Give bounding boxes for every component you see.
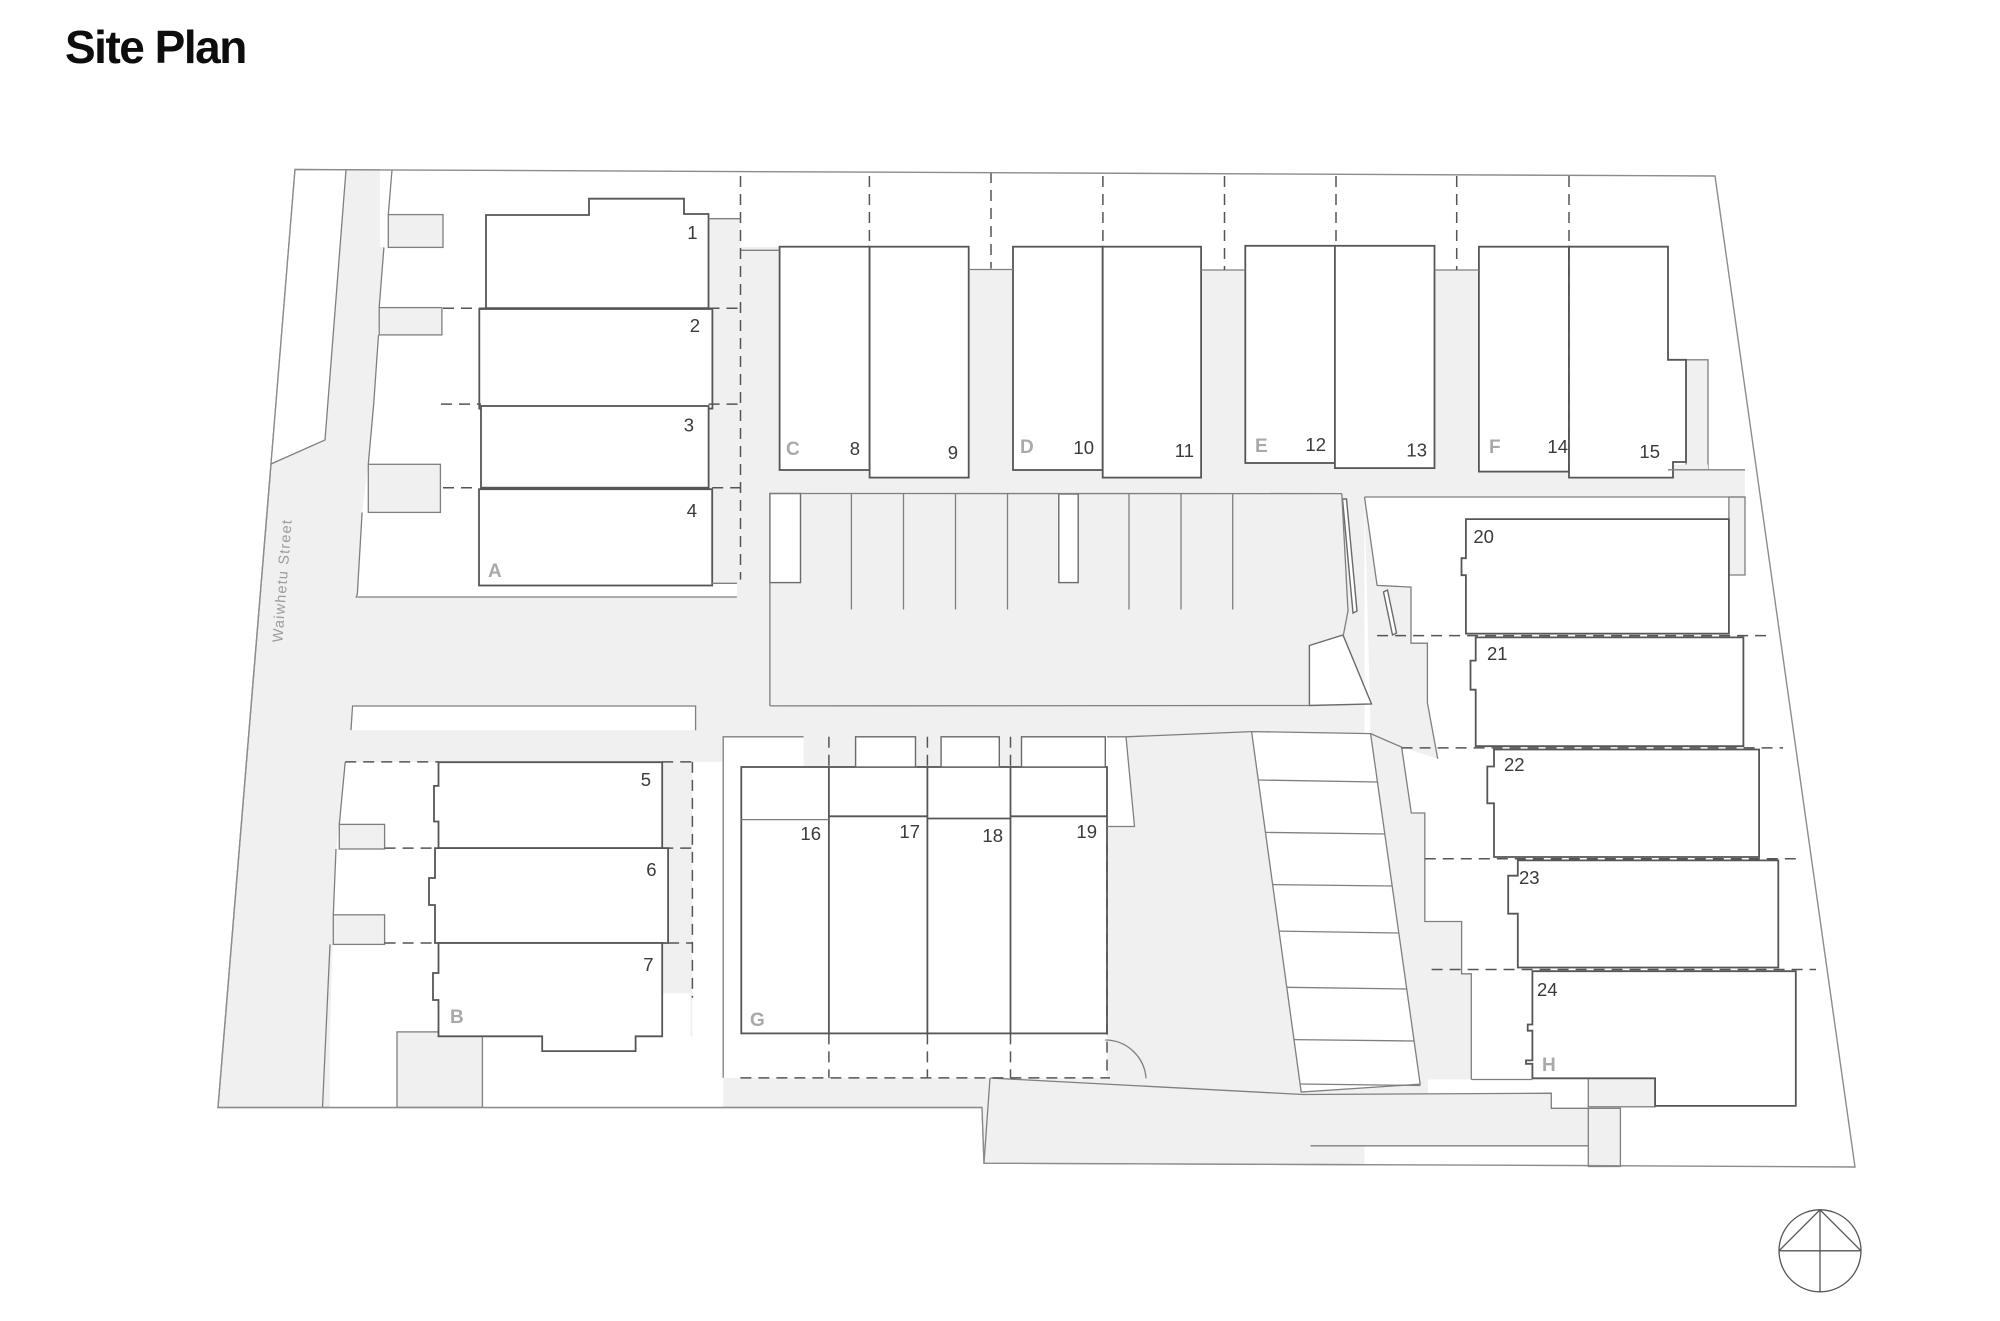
- svg-text:22: 22: [1504, 754, 1525, 775]
- svg-text:Site Plan: Site Plan: [65, 21, 246, 73]
- svg-text:4: 4: [687, 500, 697, 521]
- svg-text:3: 3: [684, 415, 694, 436]
- svg-text:11: 11: [1175, 440, 1194, 461]
- svg-text:8: 8: [850, 438, 860, 459]
- svg-text:21: 21: [1487, 643, 1508, 664]
- svg-text:D: D: [1020, 437, 1034, 458]
- svg-text:E: E: [1255, 436, 1268, 457]
- svg-text:B: B: [450, 1007, 464, 1028]
- svg-text:7: 7: [643, 954, 653, 975]
- svg-text:G: G: [750, 1010, 765, 1031]
- svg-text:20: 20: [1473, 526, 1494, 547]
- svg-text:16: 16: [800, 823, 821, 844]
- svg-text:23: 23: [1519, 867, 1540, 888]
- svg-text:15: 15: [1639, 441, 1660, 462]
- svg-text:F: F: [1489, 437, 1501, 458]
- svg-text:9: 9: [948, 442, 958, 463]
- svg-text:5: 5: [641, 769, 651, 790]
- svg-text:19: 19: [1076, 821, 1097, 842]
- svg-text:C: C: [786, 439, 800, 460]
- svg-text:2: 2: [690, 315, 700, 336]
- svg-text:1: 1: [687, 222, 697, 243]
- svg-text:18: 18: [982, 825, 1003, 846]
- svg-text:17: 17: [899, 821, 920, 842]
- svg-text:A: A: [488, 561, 502, 582]
- svg-text:H: H: [1542, 1055, 1556, 1076]
- svg-text:12: 12: [1305, 434, 1326, 455]
- svg-text:10: 10: [1073, 437, 1094, 458]
- svg-text:14: 14: [1547, 436, 1568, 457]
- svg-text:6: 6: [646, 859, 656, 880]
- svg-text:24: 24: [1537, 979, 1558, 1000]
- svg-text:13: 13: [1406, 440, 1427, 461]
